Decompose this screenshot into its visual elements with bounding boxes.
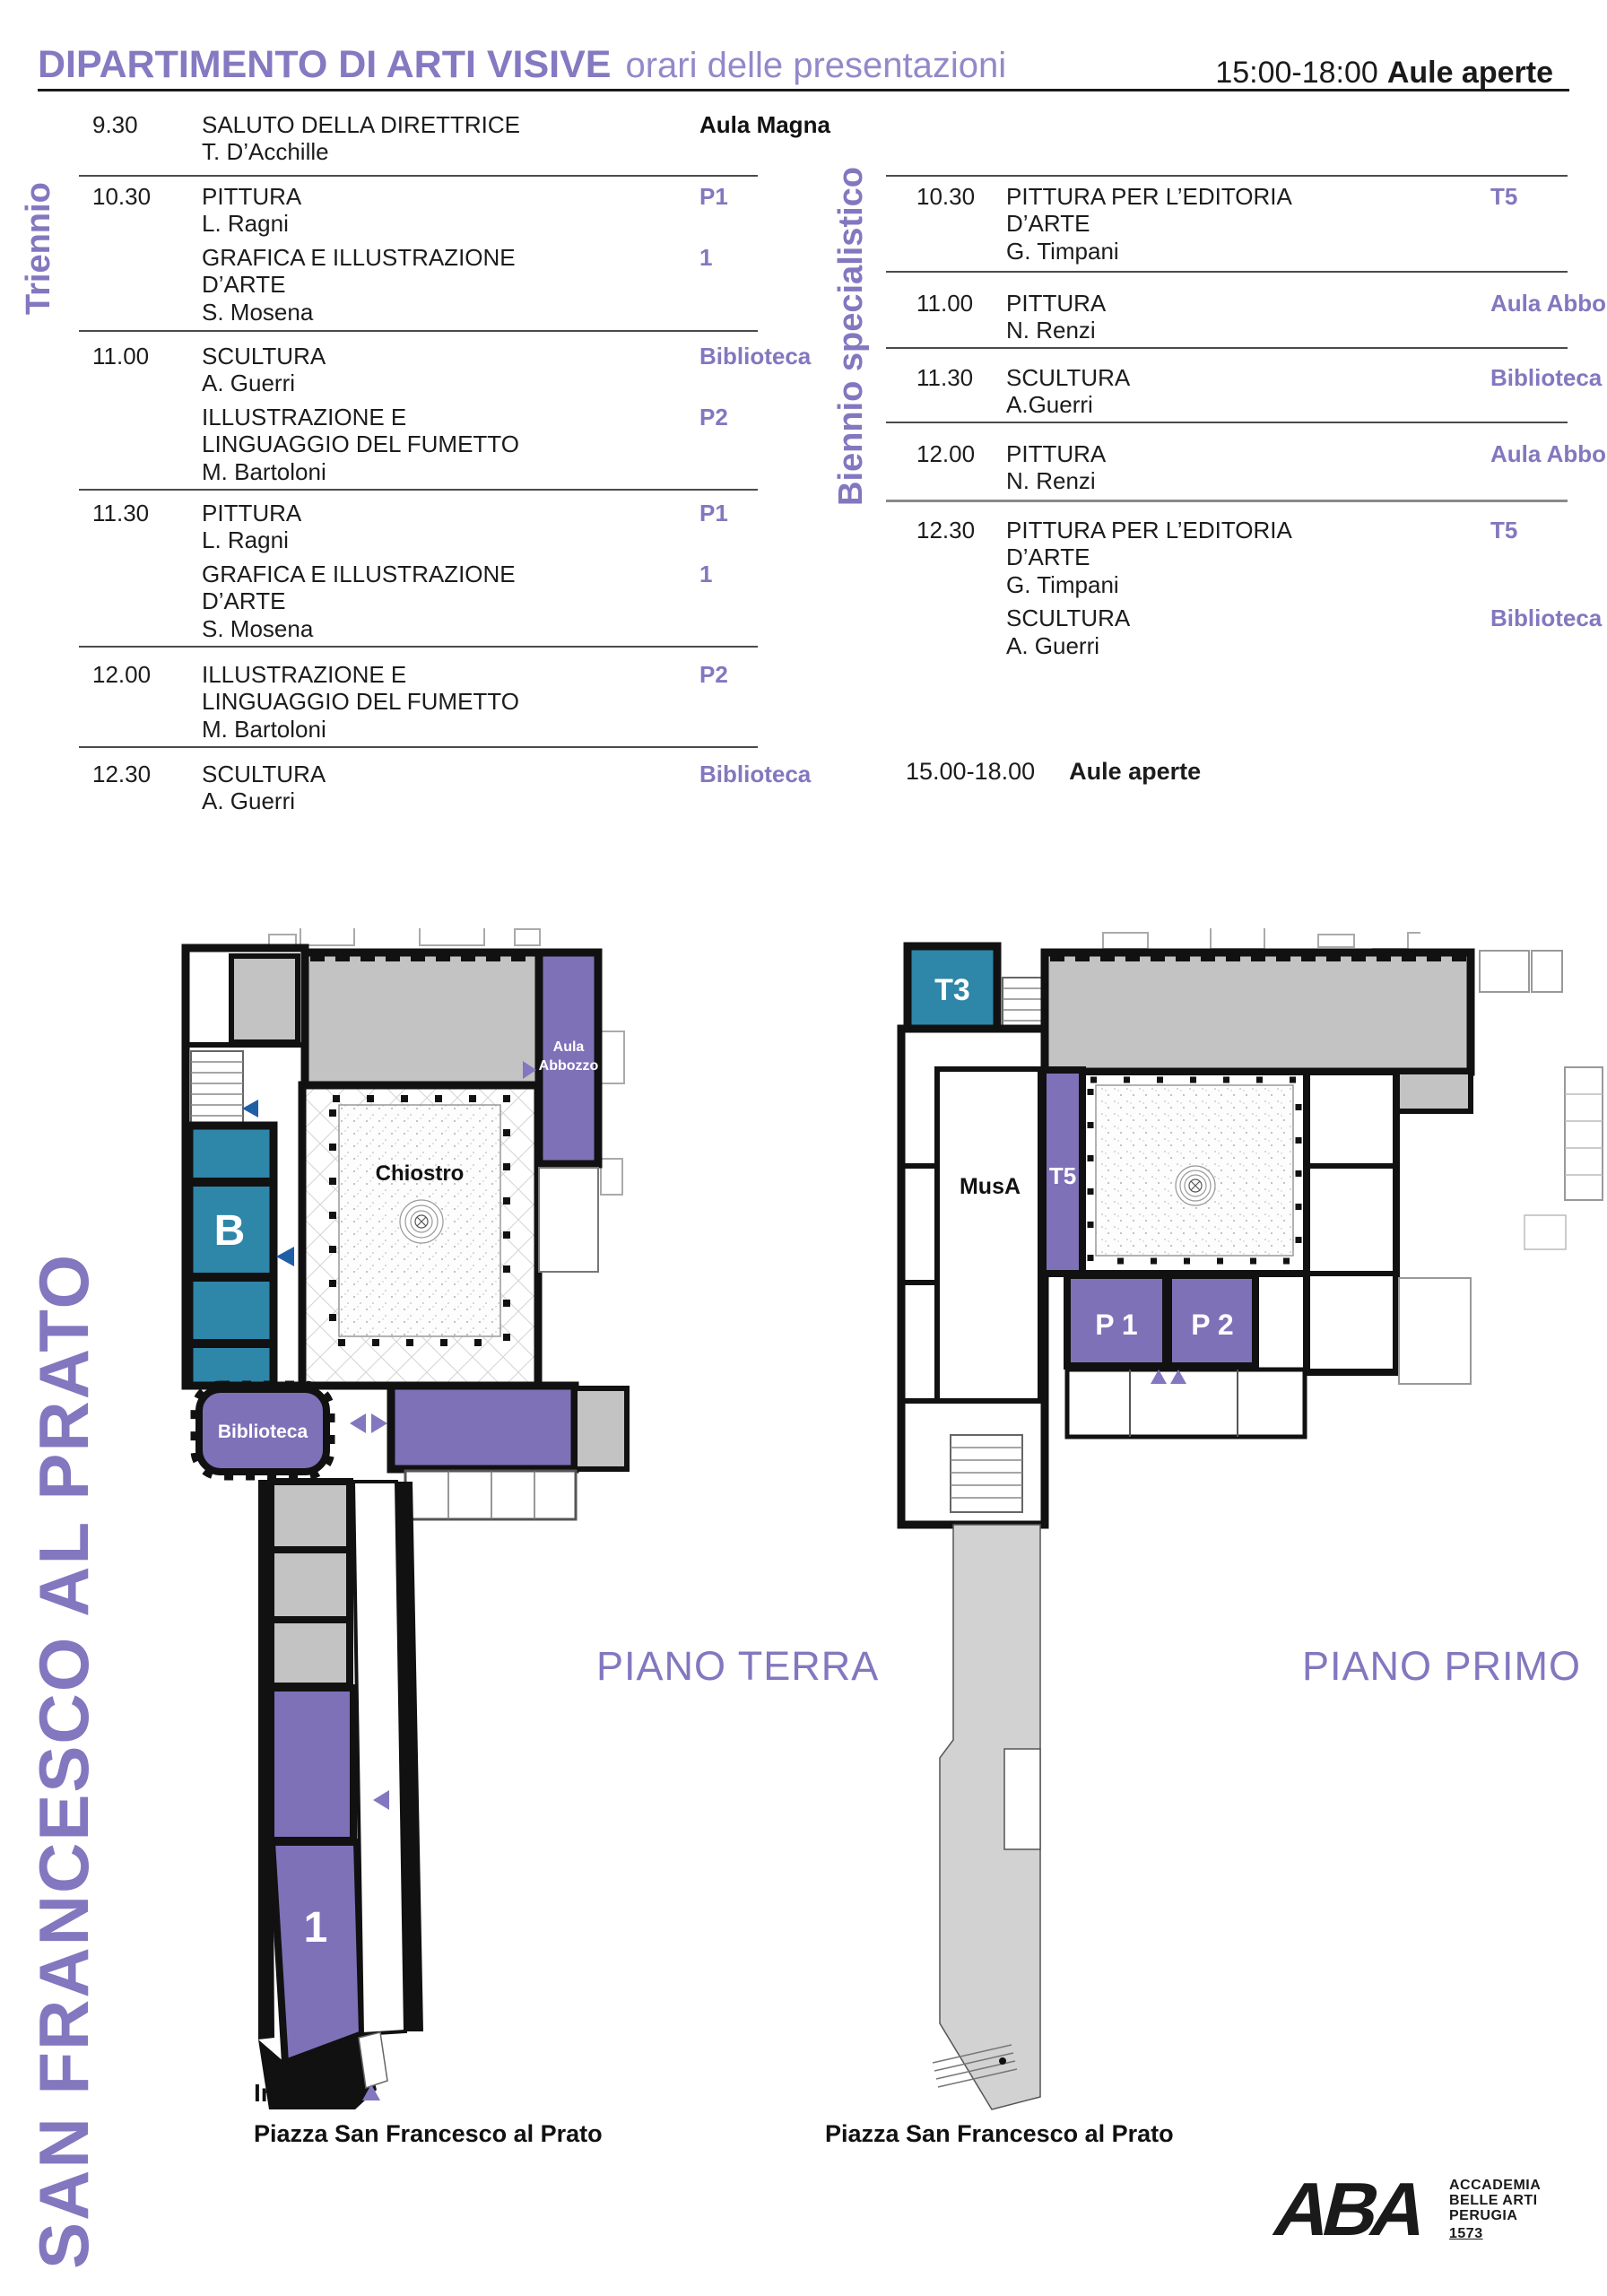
logo-line: ACCADEMIA [1449,2178,1541,2193]
aula-abbozzo-label-2: Abbozzo [539,1058,599,1074]
room-p1: P 1 [1067,1275,1166,1366]
piano-terra-title: PIANO TERRA [596,1643,879,1690]
biblioteca-label: Biblioteca [218,1422,308,1442]
service-rooms [405,1471,576,1519]
piano-primo-title: PIANO PRIMO [1302,1643,1581,1690]
session: PITTURA L. Ragni P1 [202,500,758,554]
room-1-label: 1 [304,1904,328,1952]
session-speaker: A. Guerri [202,787,758,814]
session-title: ILLUSTRAZIONE E LINGUAGGIO DEL FUMETTO [202,404,560,458]
biennio-section-label: Biennio specialistico [832,181,871,506]
row-divider [79,646,758,648]
session-room: Aula Abbozzo [1490,440,1607,468]
piano-terra-plan: B Chiostro Aula Abbozzo [175,928,816,2121]
aule-aperte-label: Aule aperte [1069,758,1201,785]
session-time: 11.30 [92,500,149,527]
open-hours-time: 15:00-18:00 [1215,56,1378,90]
session-room: T5 [1490,517,1517,544]
session-speaker: M. Bartoloni [202,716,758,743]
east-rooms [1307,1072,1471,1384]
room-t5-label: T5 [1049,1162,1076,1189]
room-aula-abbozzo: Aula Abbozzo [539,952,599,1272]
aba-logo-text: ACCADEMIA BELLE ARTI PERUGIA 1573 [1449,2178,1541,2241]
south-range-room [391,1386,575,1469]
session-title: SCULTURA [202,761,560,787]
arrow-left-icon [350,1413,366,1433]
schedule-row: 11.30 PITTURA L. Ragni P1 GRAFICA E ILLU… [92,500,758,642]
building-name-label: SAN FRANCESCO AL PRATO [23,1247,105,2269]
page-title: DIPARTIMENTO DI ARTI VISIVEorari delle p… [38,43,1006,87]
below-strip [1067,1370,1305,1437]
session: GRAFICA E ILLUSTRAZIONE D’ARTE S. Mosena… [202,244,758,326]
session-room: Aula Abbozzo [1490,290,1607,317]
row-divider [886,175,1568,177]
room-t3: T3 [908,946,997,1029]
session-title: PITTURA PER L’EDITORIA D’ARTE [1006,517,1365,571]
session: SCULTURA A. Guerri Biblioteca [202,761,758,815]
ingresso-label: Ingresso [254,2079,359,2108]
gray-room [231,956,298,1042]
row-divider [79,330,758,332]
arrow-right-icon [371,1413,387,1433]
north-wing [305,952,540,1085]
stairs-icon [191,1051,243,1130]
schedule-row: 12.30 PITTURA PER L’EDITORIA D’ARTE G. T… [916,517,1568,659]
session-time: 12.30 [92,761,151,788]
session-speaker: A.Guerri [1006,391,1568,418]
north-wing [1045,952,1471,1072]
row-divider [79,175,758,177]
piano-primo-plan: T3 MusA [897,928,1607,2121]
session-speaker: G. Timpani [1006,238,1568,265]
schedule-row: 11.00 PITTURA N. Renzi Aula Abbozzo [916,290,1568,344]
session-speaker: A. Guerri [1006,632,1568,659]
session-title: SCULTURA [202,343,560,370]
session-time: 11.00 [916,290,973,317]
aba-logo: ABA ACCADEMIA BELLE ARTI PERUGIA 1573 [1257,2165,1562,2264]
piazza-label-left: Piazza San Francesco al Prato [254,2120,603,2148]
corridor [353,1482,405,2034]
church-footprint [933,1525,1040,2109]
room-1 [272,1842,362,2063]
session-time: 11.00 [92,343,149,370]
room-t5: T5 [1043,1070,1082,1274]
aule-aperte-row: 15.00-18.00Aule aperte [906,758,1201,786]
row-divider [886,422,1568,423]
session-room: Biblioteca [699,761,811,788]
session: PITTURA N. Renzi Aula Abbozzo [1006,440,1568,495]
room-p2-label: P 2 [1191,1309,1233,1341]
session-title: PITTURA [202,183,560,210]
session-title: SCULTURA [1006,364,1365,391]
session-room: 1 [699,561,712,588]
session-speaker: L. Ragni [202,526,758,553]
open-hours-label: Aule aperte [1387,56,1553,90]
schedule-row: 11.00 SCULTURA A. Guerri Biblioteca ILLU… [92,343,758,485]
session-title: ILLUSTRAZIONE E LINGUAGGIO DEL FUMETTO [202,661,560,716]
logo-line: PERUGIA [1449,2208,1541,2223]
session-time: 12.00 [92,661,151,689]
session: PITTURA PER L’EDITORIA D’ARTE G. Timpani… [1006,517,1568,598]
session: SCULTURA A. Guerri Biblioteca [202,343,758,397]
schedule-row: 9.30 SALUTO DELLA DIRETTRICE T. D’Acchil… [92,111,758,166]
east-annex-outlines [1480,951,1603,1249]
session-speaker: A. Guerri [202,370,758,396]
session-time: 9.30 [92,111,138,139]
session-speaker: M. Bartoloni [202,458,758,485]
session-time: 11.30 [916,364,973,392]
chiostro-label: Chiostro [376,1161,465,1186]
session-room: P1 [699,500,728,527]
schedule-row: 11.30 SCULTURA A.Guerri Biblioteca [916,364,1568,419]
row-divider [886,500,1568,502]
room-p1-label: P 1 [1095,1309,1137,1341]
roof-outlines [1103,928,1420,949]
church-wing: 1 [258,1480,423,2109]
session: PITTURA PER L’EDITORIA D’ARTE G. Timpani… [1006,183,1568,265]
session-room: P2 [699,661,728,689]
session-title: GRAFICA E ILLUSTRAZIONE D’ARTE [202,244,560,299]
session: SCULTURA A. Guerri Biblioteca [1006,604,1568,659]
schedule-row: 12.30 SCULTURA A. Guerri Biblioteca [92,761,758,815]
session-room: Biblioteca [1490,604,1602,632]
room-musa [937,1069,1040,1401]
triennio-section-label: Triennio [20,119,58,315]
room-b-block: B [189,1126,274,1386]
room-musa-label: MusA [960,1174,1021,1199]
header-rule [38,89,1569,91]
aule-aperte-time: 15.00-18.00 [906,758,1035,785]
aba-logo-glyph: ABA [1257,2165,1446,2255]
session: GRAFICA E ILLUSTRAZIONE D’ARTE S. Mosena… [202,561,758,642]
room-biblioteca: Biblioteca [194,1384,332,1477]
session-title: SCULTURA [1006,604,1365,631]
session: SALUTO DELLA DIRETTRICE T. D’Acchille Au… [202,111,758,166]
schedule-row: 10.30 PITTURA PER L’EDITORIA D’ARTE G. T… [916,183,1568,265]
session-speaker: L. Ragni [202,210,758,237]
session-time: 10.30 [916,183,975,211]
logo-year: 1573 [1449,2226,1483,2241]
row-divider [79,746,758,748]
session-speaker: N. Renzi [1006,317,1568,344]
session-speaker: G. Timpani [1006,571,1568,598]
fountain-icon [400,1200,443,1243]
row-divider [79,489,758,491]
session-room: Aula Magna [699,111,830,139]
poster-page: DIPARTIMENTO DI ARTI VISIVEorari delle p… [0,0,1607,2296]
purple-room [271,1688,353,1840]
session-room: Biblioteca [699,343,811,370]
row-divider [886,271,1568,273]
logo-line: BELLE ARTI [1449,2193,1541,2208]
session-speaker: T. D’Acchille [202,138,758,165]
session-room: P2 [699,404,728,431]
session-room: 1 [699,244,712,272]
session-title: GRAFICA E ILLUSTRAZIONE D’ARTE [202,561,560,615]
session-room: Biblioteca [1490,364,1602,392]
session-speaker: S. Mosena [202,615,758,642]
session-title: PITTURA [1006,440,1365,467]
aba-logo-letters: ABA [1266,2168,1437,2252]
session-speaker: N. Renzi [1006,467,1568,494]
department-title: DIPARTIMENTO DI ARTI VISIVE [38,43,611,86]
session-title: PITTURA PER L’EDITORIA D’ARTE [1006,183,1365,238]
session-room: T5 [1490,183,1517,211]
open-hours: 15:00-18:00Aule aperte [1215,56,1553,91]
page-subtitle: orari delle presentazioni [625,46,1006,85]
session-speaker: S. Mosena [202,299,758,326]
piazza-label-right: Piazza San Francesco al Prato [825,2120,1174,2148]
session: PITTURA N. Renzi Aula Abbozzo [1006,290,1568,344]
session: ILLUSTRAZIONE E LINGUAGGIO DEL FUMETTO M… [202,404,758,485]
session-title: SALUTO DELLA DIRETTRICE [202,111,560,138]
fountain-icon [1176,1166,1215,1205]
cloister: Chiostro [302,1085,538,1386]
session: ILLUSTRAZIONE E LINGUAGGIO DEL FUMETTO M… [202,661,758,743]
session-room: P1 [699,183,728,211]
session: SCULTURA A.Guerri Biblioteca [1006,364,1568,419]
courtyard [1082,1072,1307,1274]
session-title: PITTURA [1006,290,1365,317]
schedule-row: 12.00 PITTURA N. Renzi Aula Abbozzo [916,440,1568,495]
aula-abbozzo-label-1: Aula [553,1039,585,1055]
room-b-label: B [214,1207,246,1255]
schedule-row: 10.30 PITTURA L. Ragni P1 GRAFICA E ILLU… [92,183,758,326]
room-t3-label: T3 [934,973,970,1007]
row-divider [886,347,1568,349]
session-time: 10.30 [92,183,151,211]
session-time: 12.30 [916,517,975,544]
schedule-row: 12.00 ILLUSTRAZIONE E LINGUAGGIO DEL FUM… [92,661,758,743]
gray-room [575,1388,627,1469]
session-title: PITTURA [202,500,560,526]
west-wing: MusA [901,1029,1045,1525]
room-p2: P 2 [1168,1275,1255,1366]
session-time: 12.00 [916,440,975,468]
session: PITTURA L. Ragni P1 [202,183,758,238]
